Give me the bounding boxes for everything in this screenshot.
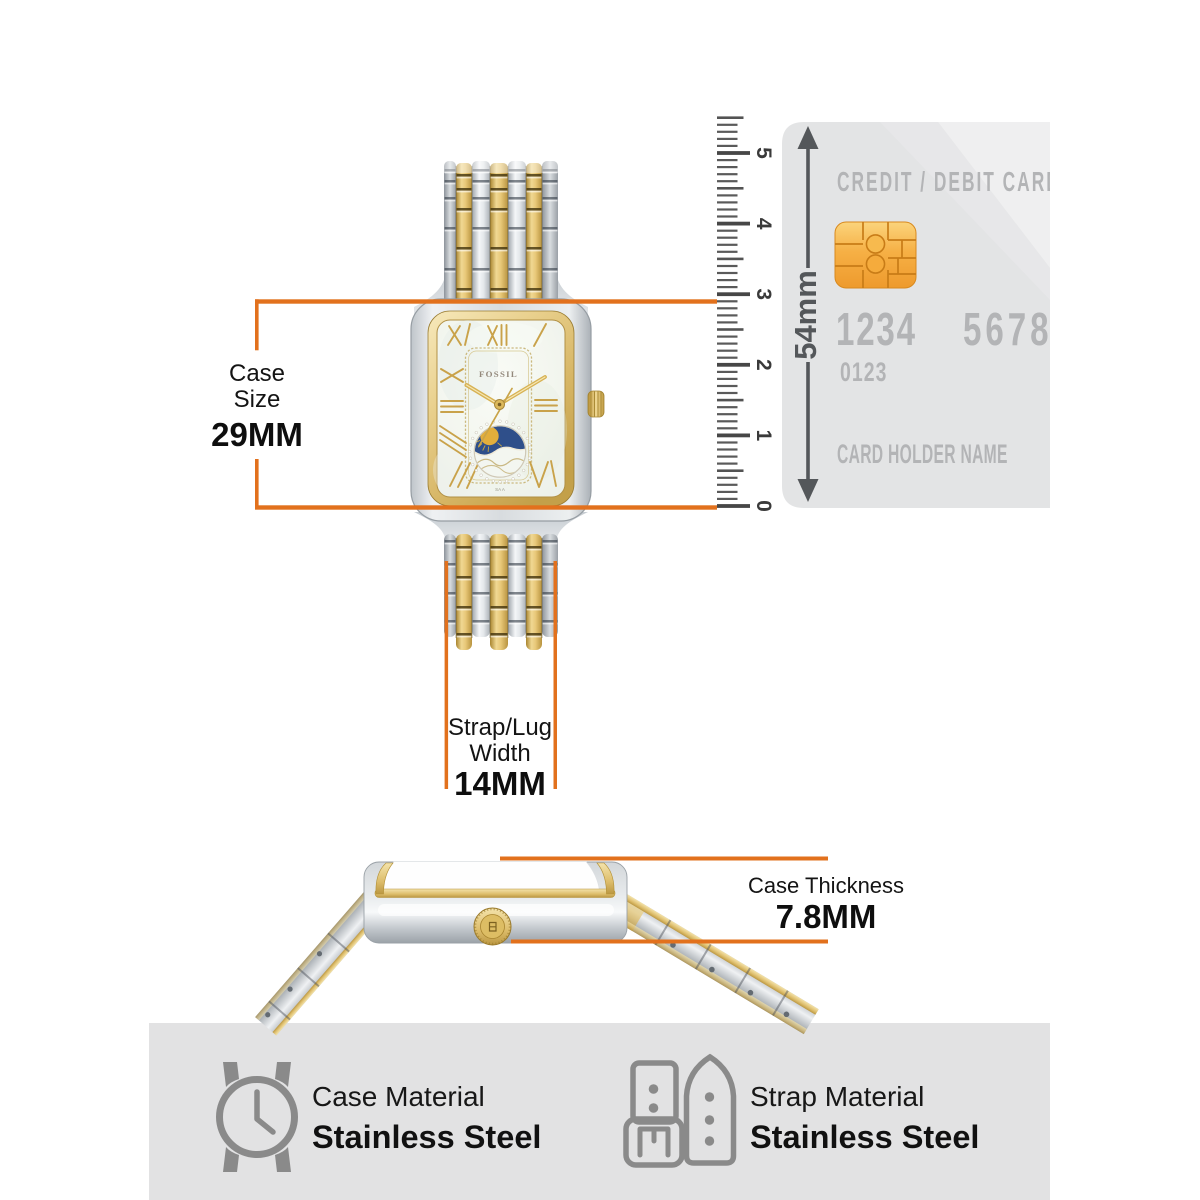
svg-text:Strap Material: Strap Material <box>750 1081 924 1112</box>
svg-text:1234: 1234 <box>836 305 917 355</box>
svg-text:Size: Size <box>234 386 281 413</box>
svg-text:Stainless Steel: Stainless Steel <box>312 1119 541 1155</box>
svg-text:Strap/Lug: Strap/Lug <box>448 714 552 741</box>
svg-text:3: 3 <box>752 288 775 300</box>
svg-text:Case: Case <box>229 360 285 387</box>
svg-text:14MM: 14MM <box>454 765 546 802</box>
svg-text:2: 2 <box>752 359 775 371</box>
svg-text:54mm: 54mm <box>788 270 823 360</box>
svg-text:7.8MM: 7.8MM <box>776 898 877 935</box>
svg-text:SA A: SA A <box>495 487 505 492</box>
svg-text:Case Thickness: Case Thickness <box>748 873 904 898</box>
svg-text:4: 4 <box>752 218 775 230</box>
svg-text:Case Material: Case Material <box>312 1081 485 1112</box>
svg-text:5678: 5678 <box>963 305 1053 355</box>
svg-text:FOSSIL: FOSSIL <box>479 369 518 379</box>
svg-text:1: 1 <box>752 430 775 442</box>
svg-text:Width: Width <box>469 740 530 767</box>
svg-text:CREDIT / DEBIT CARD: CREDIT / DEBIT CARD <box>837 166 1061 197</box>
svg-text:0: 0 <box>752 500 775 512</box>
svg-text:Stainless Steel: Stainless Steel <box>750 1119 979 1155</box>
svg-text:5: 5 <box>752 147 775 159</box>
svg-text:29MM: 29MM <box>211 416 303 453</box>
svg-text:CARD HOLDER NAME: CARD HOLDER NAME <box>837 439 1008 470</box>
svg-text:0123: 0123 <box>840 357 888 387</box>
